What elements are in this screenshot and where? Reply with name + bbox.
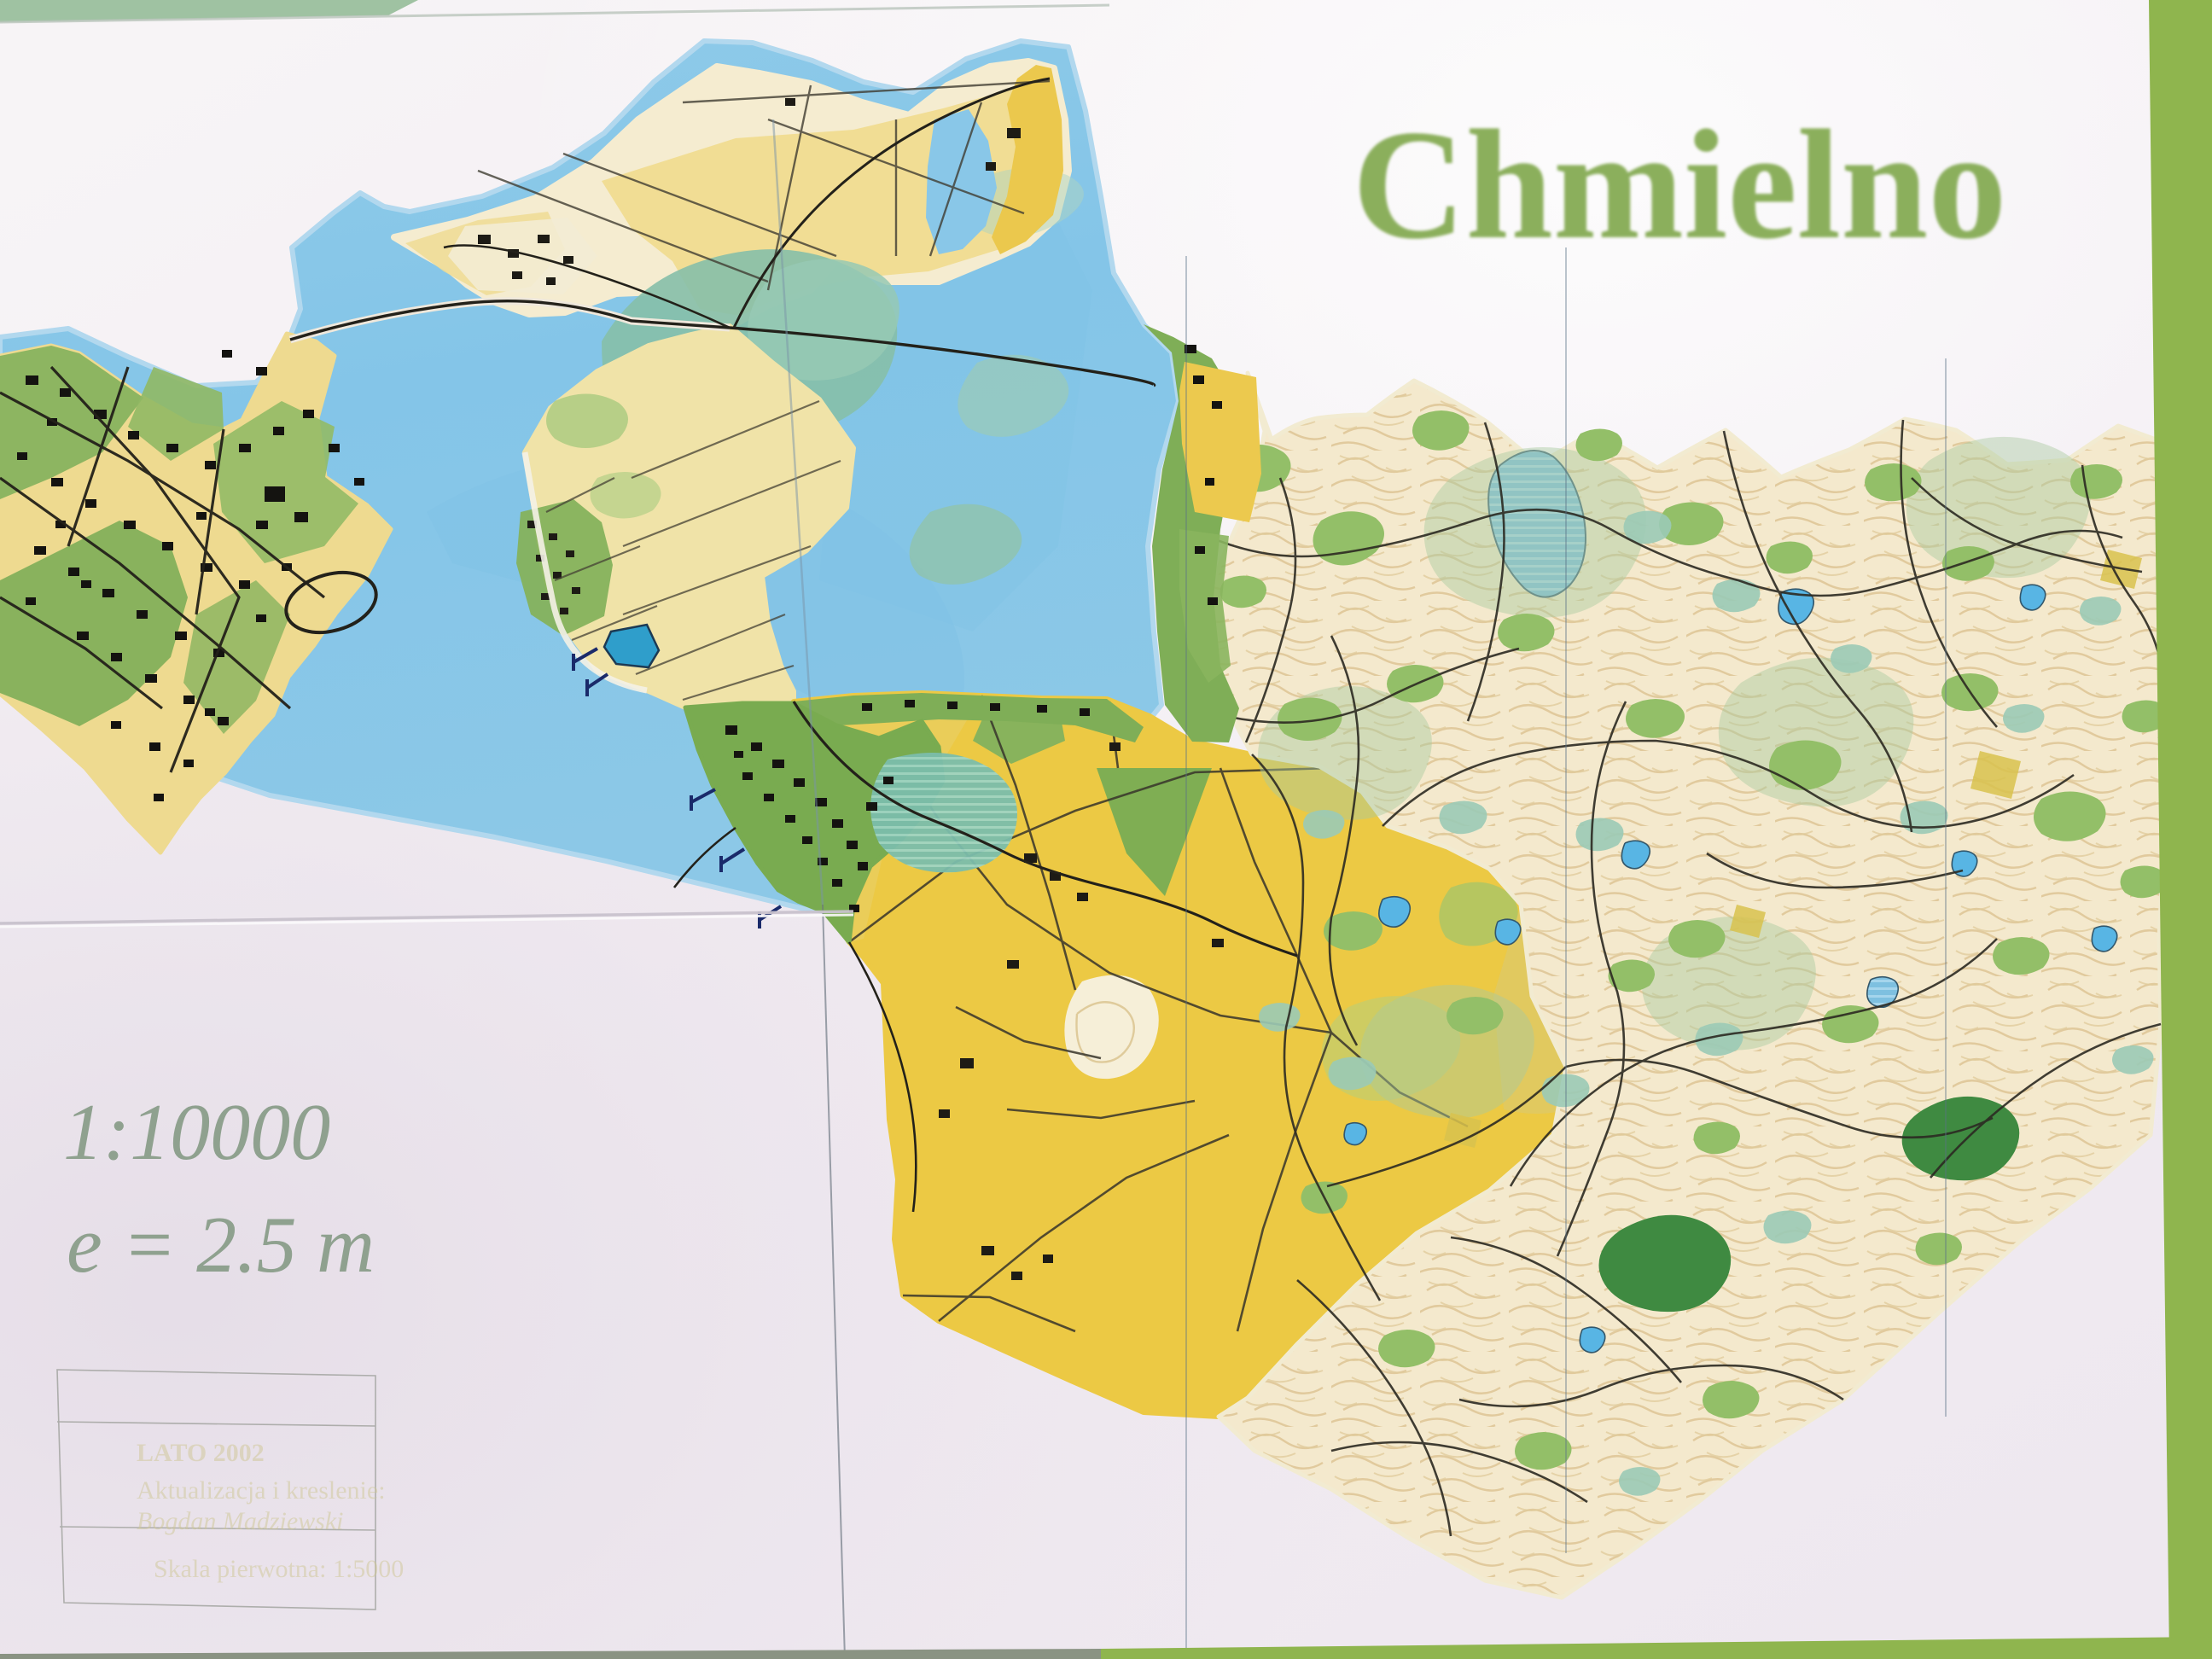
svg-text:1:10000: 1:10000 xyxy=(63,1088,330,1177)
svg-text:Bogdan Madziewski: Bogdan Madziewski xyxy=(137,1507,343,1535)
svg-text:LATO 2002: LATO 2002 xyxy=(137,1439,265,1467)
svg-text:Chmielno: Chmielno xyxy=(1353,97,2007,271)
svg-text:e = 2.5 m: e = 2.5 m xyxy=(67,1201,375,1289)
svg-text:Skala pierwotna: 1:5000: Skala pierwotna: 1:5000 xyxy=(154,1555,404,1583)
svg-text:Aktualizacja i kreslenie:: Aktualizacja i kreslenie: xyxy=(137,1476,386,1505)
